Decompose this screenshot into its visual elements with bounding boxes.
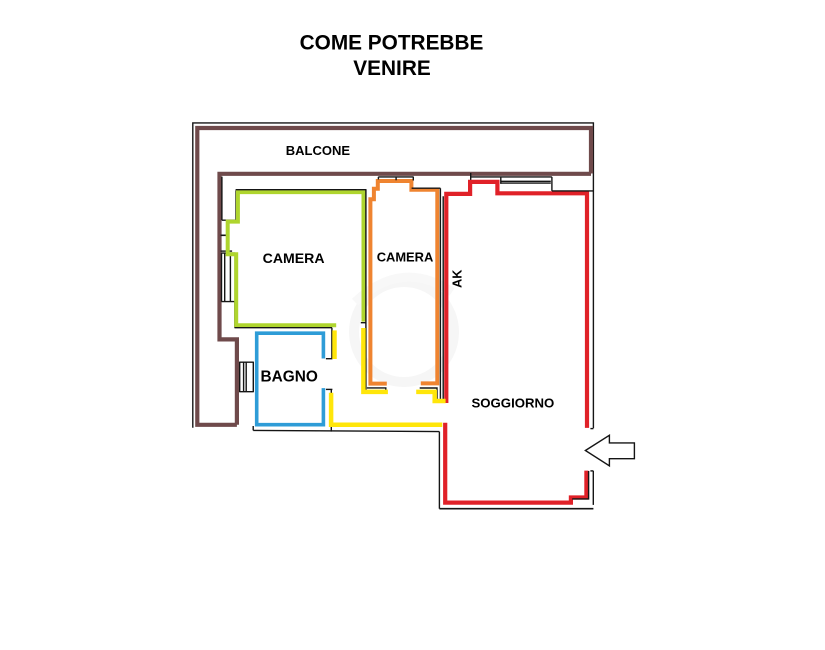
svg-text:COME POTREBBE: COME POTREBBE <box>300 31 484 54</box>
svg-text:SOGGIORNO: SOGGIORNO <box>472 395 555 410</box>
svg-text:CAMERA: CAMERA <box>263 250 325 266</box>
svg-text:CAMERA: CAMERA <box>377 250 434 265</box>
svg-text:AK: AK <box>450 270 464 288</box>
svg-text:BALCONE: BALCONE <box>286 143 351 158</box>
svg-text:BAGNO: BAGNO <box>261 368 318 385</box>
svg-text:VENIRE: VENIRE <box>353 57 431 80</box>
